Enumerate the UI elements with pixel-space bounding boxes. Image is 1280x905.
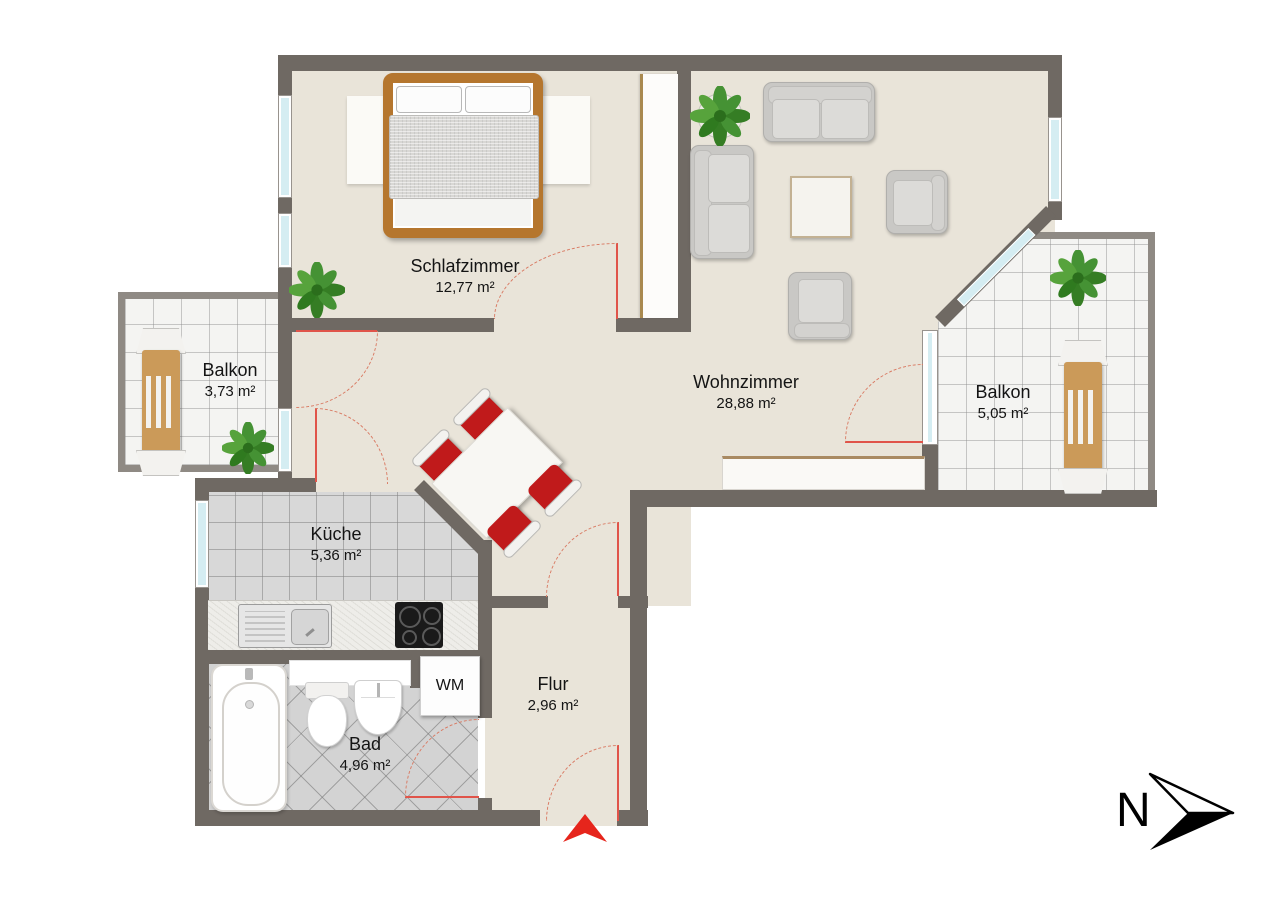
compass-needle-top [1150,774,1233,813]
burner [402,630,417,645]
wall [195,478,316,492]
window [278,213,292,268]
bed-sheet [395,199,531,226]
room-label-kueche: Küche 5,36 m² [256,524,416,566]
bathtub [211,664,287,812]
room-label-balkon-links: Balkon 3,73 m² [150,360,310,402]
balcony-chair [136,450,186,476]
room-label-schlafzimmer: Schlafzimmer 12,77 m² [365,256,565,298]
window [195,500,209,588]
basin-faucet-icon [377,683,380,697]
wall [278,55,292,95]
wall [617,810,648,826]
balcony-right-railing [1022,232,1155,239]
balcony-left-railing [118,292,285,299]
compass-north-label: N [1116,784,1151,837]
window [1048,117,1062,202]
washing-machine: WM [420,656,480,716]
entrance-arrow [556,812,614,848]
balcony-right-railing [1148,232,1155,497]
wall [195,588,209,826]
wall [618,596,648,608]
floor-plan: WM [0,0,1280,905]
sofa-two-seat [690,145,754,259]
sink-basin [291,609,329,645]
kitchen-sink [238,604,332,648]
plant [1050,250,1106,306]
coffee-table [790,176,852,238]
tub-faucet-icon [245,668,253,680]
burner [423,607,441,625]
bed [383,73,543,238]
pillow [396,86,462,113]
sofa-two-seat [763,82,875,142]
burner [422,627,441,646]
balcony-bench-left [132,328,190,476]
room-label-wohnzimmer: Wohnzimmer 28,88 m² [646,372,846,414]
armchair [788,272,852,340]
burner [399,606,421,628]
balcony-left-railing [118,292,125,472]
tub-drain [245,700,254,709]
room-label-balkon-rechts: Balkon 5,05 m² [923,382,1083,424]
plant [222,422,274,474]
balcony-chair [1058,468,1108,494]
wall [478,798,492,812]
wall [677,55,691,332]
window [278,95,292,198]
cooktop [395,602,443,648]
room-label-flur: Flur 2,96 m² [473,674,633,716]
wall [630,507,647,826]
drainboard [245,611,285,642]
blanket [389,115,539,199]
wall [195,810,540,826]
room-label-bad: Bad 4,96 m² [285,734,445,776]
wall [1048,55,1062,117]
balcony-door-left [278,408,292,472]
compass-needle-bottom [1150,813,1233,850]
armchair [886,170,948,234]
wardrobe [640,74,678,318]
compass: N [1102,760,1252,856]
wall [278,198,292,213]
pillow [465,86,531,113]
washing-machine-label: WM [436,677,464,695]
wall [278,55,1062,71]
potted-plant [690,86,750,146]
plant [289,262,345,318]
sideboard [722,456,925,490]
